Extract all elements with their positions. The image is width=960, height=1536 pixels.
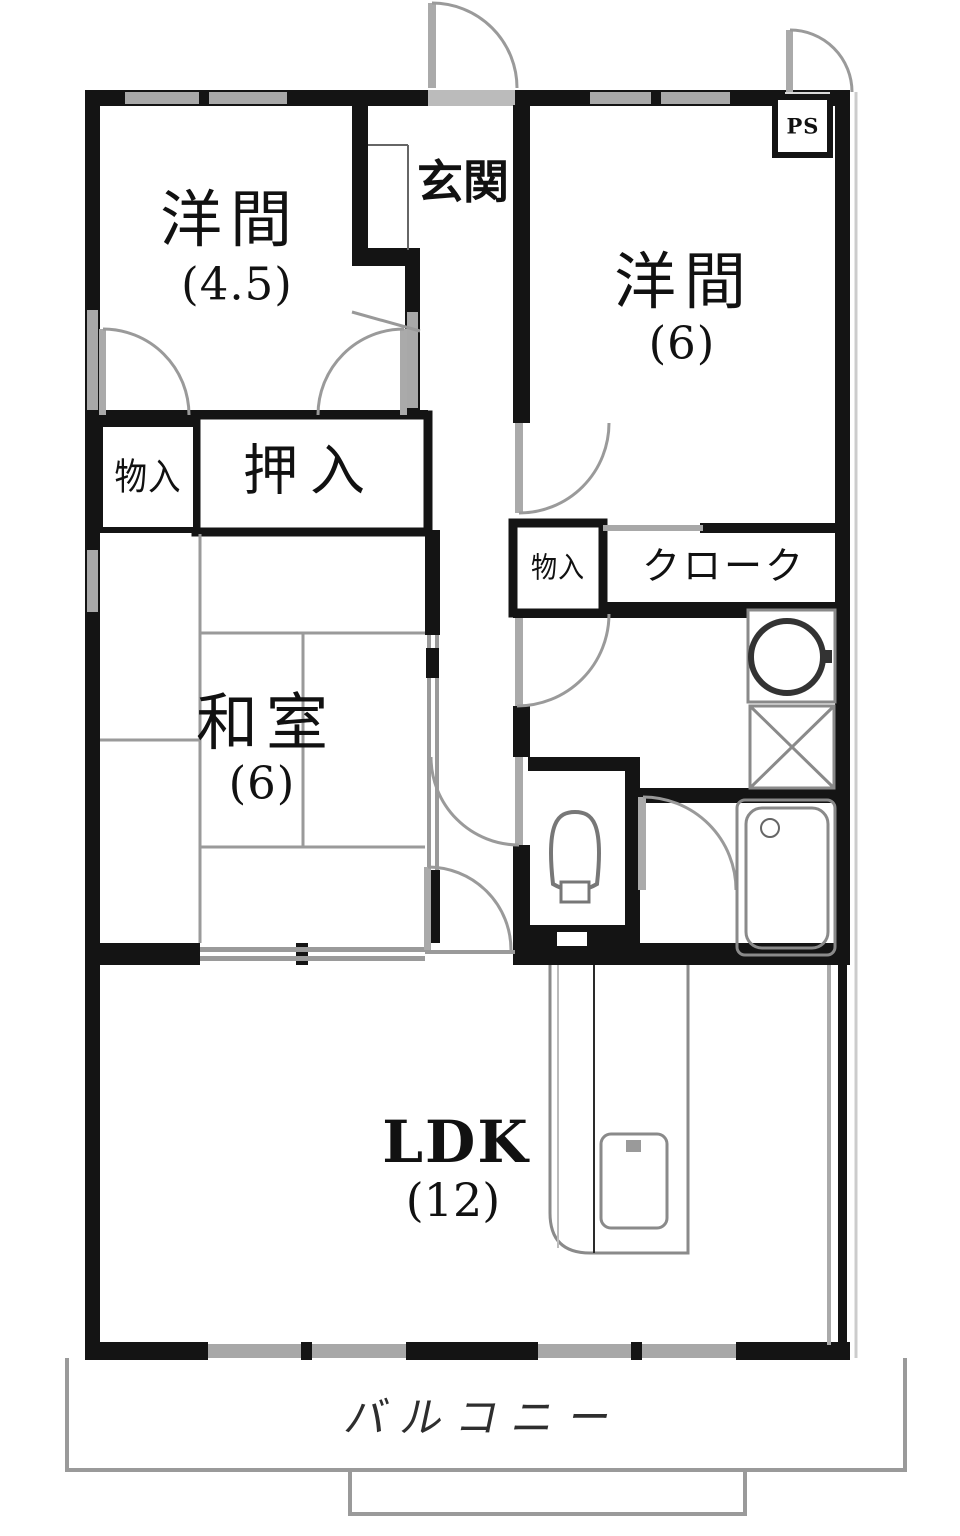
room-label-storage-hall: 物入 — [531, 554, 585, 583]
washbasin-icon — [748, 610, 835, 702]
room45-door-arc-left — [103, 329, 189, 415]
room-label-balcony: バルコニー — [341, 1397, 629, 1439]
window-left-room1 — [87, 310, 98, 410]
toilet-door-arc — [431, 757, 519, 845]
room6-door-arc — [519, 423, 609, 513]
entry-door-opening — [428, 90, 515, 106]
room-label-storage-left: 物入 — [115, 459, 182, 496]
bathroom-door-arc — [643, 797, 736, 890]
bathtub-icon — [737, 800, 835, 955]
entrance-step-lines — [368, 145, 408, 250]
toilet-room-vent — [557, 932, 587, 946]
entry-door-arc — [432, 3, 517, 88]
ps-door-arc — [790, 30, 852, 92]
room-label-japanese-room: 和室 — [196, 692, 336, 754]
washroom-door-arc — [517, 614, 609, 706]
room-label-ldk: LDK — [382, 1113, 530, 1171]
cloak-sliding-door — [603, 525, 703, 531]
room-label-western-room-2: 洋間 — [614, 251, 754, 313]
room-label-entrance: 玄関 — [417, 159, 509, 205]
room-label-pipe-space: PS — [787, 116, 820, 137]
floor-plan: 洋間 (4.5) 玄関 洋間 (6) PS 物入 押入 物入 クローク 和室 (… — [0, 0, 960, 1536]
room-size-western-room-1: (4.5) — [181, 262, 293, 307]
kitchen-counter — [550, 965, 688, 1253]
ldk-door-arc — [428, 867, 511, 950]
room-label-western-room-1: 洋間 — [160, 189, 300, 251]
room-label-closet-oshiire: 押入 — [243, 444, 377, 499]
entry-door-leaf — [428, 3, 436, 88]
room45-door-arc-right — [318, 329, 404, 415]
window-left-washitsu — [87, 550, 98, 612]
room-label-cloak: クローク — [642, 547, 806, 585]
ps-door-leaf — [786, 30, 793, 92]
kitchen-faucet — [626, 1140, 641, 1152]
room-size-ldk: (12) — [406, 1177, 500, 1223]
washing-machine-pan-icon — [750, 706, 834, 788]
room-size-western-room-2: (6) — [649, 321, 716, 366]
room-size-japanese-room: (6) — [229, 761, 296, 806]
floor-plan-drawing — [0, 0, 960, 1536]
